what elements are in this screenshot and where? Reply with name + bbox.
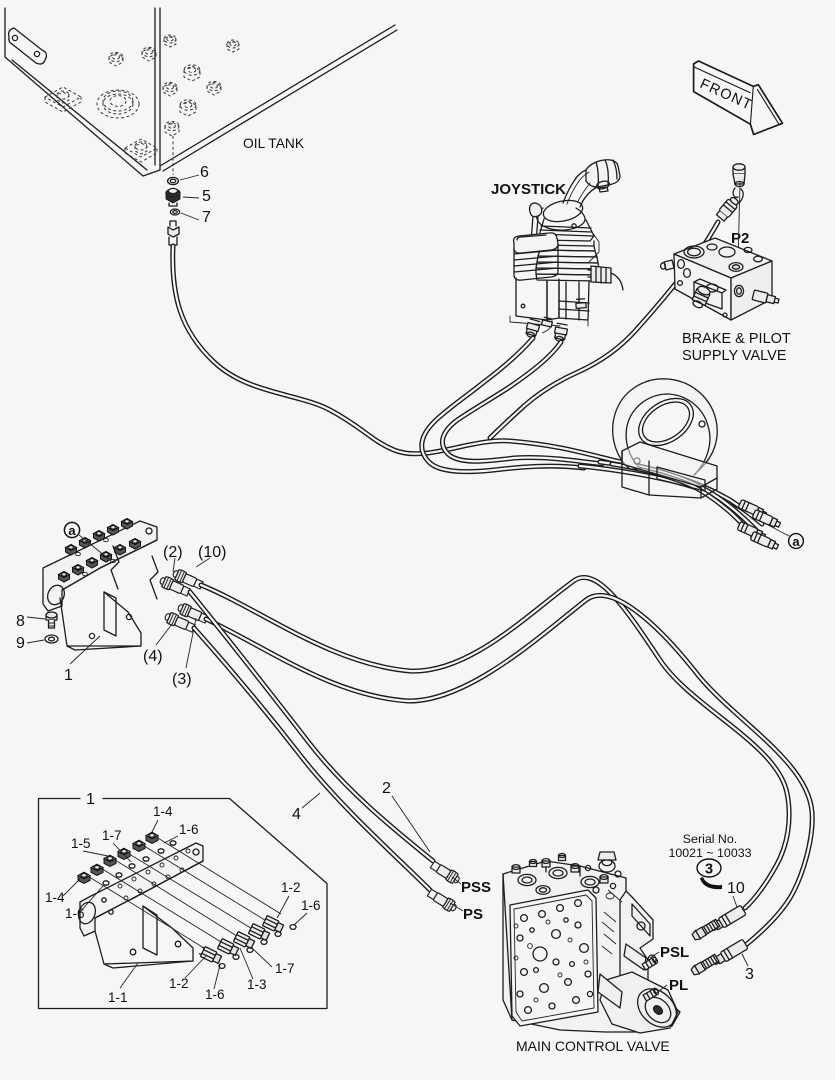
svg-text:3: 3: [745, 966, 754, 983]
svg-text:1-6: 1-6: [301, 898, 321, 913]
svg-text:1-1: 1-1: [108, 990, 128, 1005]
svg-text:2: 2: [382, 780, 391, 797]
svg-text:1-4: 1-4: [45, 890, 65, 905]
svg-text:1: 1: [86, 791, 95, 808]
svg-text:a: a: [792, 534, 800, 549]
svg-text:8: 8: [16, 613, 25, 630]
svg-text:10021 ~ 10033: 10021 ~ 10033: [668, 846, 751, 860]
svg-text:PSL: PSL: [660, 944, 689, 961]
svg-text:BRAKE & PILOT: BRAKE & PILOT: [682, 331, 791, 347]
svg-text:(10): (10): [198, 544, 226, 561]
svg-text:5: 5: [202, 188, 211, 205]
svg-text:7: 7: [202, 209, 211, 226]
svg-text:(3): (3): [172, 671, 192, 688]
svg-text:1-4: 1-4: [153, 804, 173, 819]
svg-text:1-7: 1-7: [102, 828, 122, 843]
svg-text:(2): (2): [163, 544, 183, 561]
svg-text:a: a: [68, 523, 76, 538]
svg-text:PSS: PSS: [461, 879, 491, 896]
svg-text:6: 6: [200, 164, 209, 181]
svg-text:9: 9: [16, 635, 25, 652]
svg-text:1-6: 1-6: [205, 987, 225, 1002]
svg-text:P2: P2: [731, 230, 749, 247]
svg-text:PS: PS: [463, 906, 483, 923]
svg-text:1-2: 1-2: [169, 976, 189, 991]
svg-text:MAIN CONTROL VALVE: MAIN CONTROL VALVE: [516, 1038, 670, 1054]
svg-text:(4): (4): [143, 648, 163, 665]
svg-text:1-5: 1-5: [71, 836, 91, 851]
svg-text:1-7: 1-7: [275, 961, 295, 976]
svg-text:1-3: 1-3: [247, 977, 267, 992]
svg-text:SUPPLY VALVE: SUPPLY VALVE: [682, 348, 787, 364]
svg-text:10: 10: [727, 880, 745, 897]
svg-text:1-2: 1-2: [281, 880, 301, 895]
svg-text:3: 3: [705, 862, 713, 878]
svg-text:OIL TANK: OIL TANK: [243, 136, 305, 151]
svg-text:4: 4: [292, 806, 301, 823]
svg-text:PL: PL: [669, 977, 688, 994]
svg-text:Serial No.: Serial No.: [683, 832, 737, 846]
svg-text:1-6: 1-6: [65, 906, 85, 921]
svg-text:JOYSTICK: JOYSTICK: [491, 181, 566, 198]
svg-text:1: 1: [64, 667, 73, 684]
svg-text:1-6: 1-6: [179, 822, 199, 837]
